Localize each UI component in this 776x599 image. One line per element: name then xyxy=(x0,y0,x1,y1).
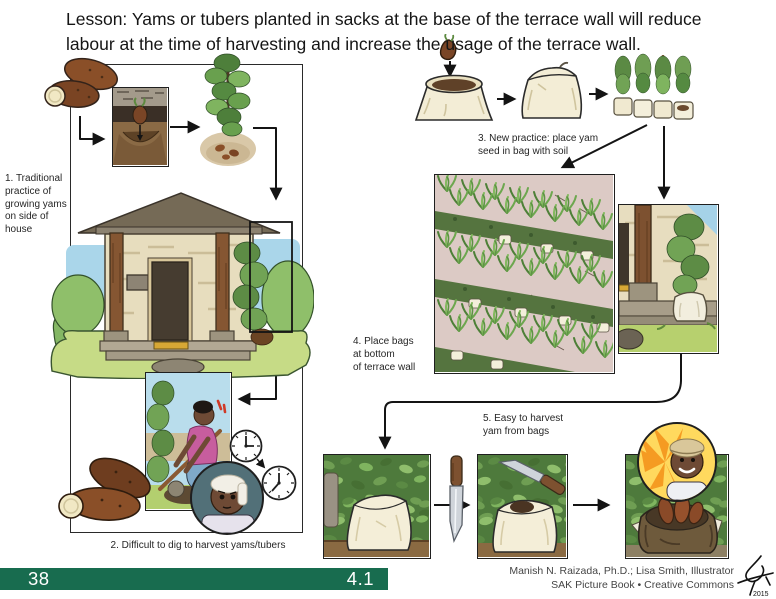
footer-bar: 38 4.1 xyxy=(0,568,388,590)
step5-label: 5. Easy to harvest yam from bags xyxy=(483,413,593,439)
injured-person-inset xyxy=(190,461,264,535)
credit-authors: Manish N. Raizada, Ph.D.; Lisa Smith, Il… xyxy=(434,564,734,578)
terrace-field-image xyxy=(434,174,615,374)
open-bag-with-soil-icon xyxy=(412,64,496,131)
step4-label: 4. Place bags at bottom of terrace wall xyxy=(353,336,437,374)
closed-bag-icon xyxy=(514,58,588,129)
signature-year: 2015 xyxy=(753,591,769,598)
cutting-bag-image xyxy=(477,454,568,559)
harvested-yams-icon xyxy=(58,448,152,528)
wall-bag-closeup-image xyxy=(618,204,719,354)
lesson-title: Lesson: Yams or tubers planted in sacks … xyxy=(66,7,754,57)
knife-icon xyxy=(444,455,470,547)
step1-label: 1. Traditional practice of growing yams … xyxy=(5,173,71,237)
credit-publisher: SAK Picture Book • Creative Commons xyxy=(434,578,734,592)
yam-plant-icon xyxy=(196,53,260,177)
harvest-bag-image xyxy=(323,454,431,559)
seed-planting-image xyxy=(112,87,169,167)
happy-farmer-inset xyxy=(637,422,717,502)
plant-bags-row-icon xyxy=(610,50,696,124)
section-number: 4.1 xyxy=(347,568,374,590)
page-number: 38 xyxy=(28,568,50,590)
step3-label: 3. New practice: place yam seed in bag w… xyxy=(478,133,618,159)
clock-icon xyxy=(228,428,264,464)
clock-later-icon xyxy=(260,464,298,502)
lesson-page: Lesson: Yams or tubers planted in sacks … xyxy=(0,0,776,599)
house-scene-illustration xyxy=(48,183,314,379)
yam-tubers-icon xyxy=(44,50,122,118)
step2-label: 2. Difficult to dig to harvest yams/tube… xyxy=(70,540,326,553)
illustrator-signature: 2015 xyxy=(733,553,776,599)
credits: Manish N. Raizada, Ph.D.; Lisa Smith, Il… xyxy=(434,564,734,592)
